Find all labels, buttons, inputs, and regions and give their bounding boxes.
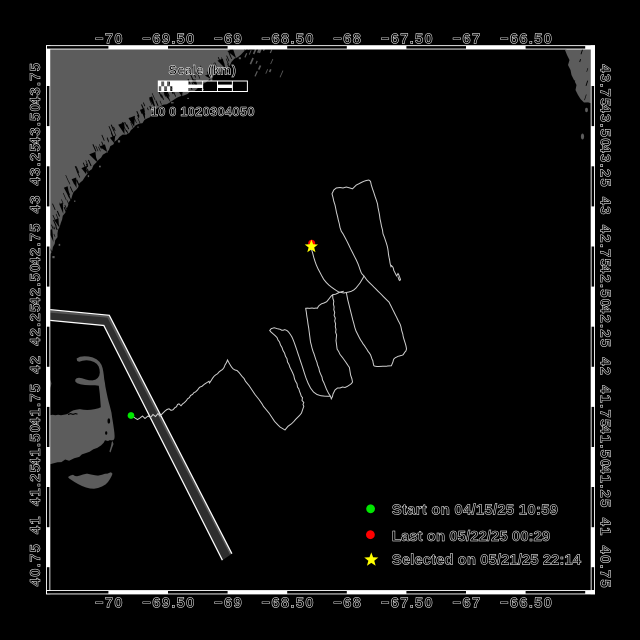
svg-text:41.75: 41.75	[597, 385, 614, 428]
svg-text:41: 41	[27, 515, 44, 534]
svg-text:40.75: 40.75	[27, 543, 44, 586]
svg-text:43: 43	[597, 197, 614, 216]
svg-text:Selected on 05/21/25 22:14: Selected on 05/21/25 22:14	[392, 552, 582, 569]
svg-text:42.50: 42.50	[597, 265, 614, 308]
svg-text:40.75: 40.75	[597, 545, 614, 588]
svg-text:43.25: 43.25	[597, 145, 614, 188]
svg-text:Start on 04/15/25 10:59: Start on 04/15/25 10:59	[392, 502, 558, 519]
svg-text:20: 20	[195, 104, 210, 119]
svg-text:41: 41	[597, 518, 614, 537]
svg-text:42.75: 42.75	[27, 222, 44, 265]
svg-text:43.75: 43.75	[597, 64, 614, 107]
svg-text:−67.50: −67.50	[381, 595, 434, 612]
svg-text:−67: −67	[452, 595, 481, 612]
svg-text:43.50: 43.50	[27, 102, 44, 145]
svg-text:43.75: 43.75	[27, 62, 44, 105]
svg-text:−66.50: −66.50	[500, 31, 553, 48]
svg-text:43.50: 43.50	[597, 104, 614, 147]
svg-text:42.25: 42.25	[27, 303, 44, 346]
svg-text:42: 42	[597, 357, 614, 376]
svg-text:−69.50: −69.50	[142, 31, 195, 48]
svg-text:−68: −68	[333, 595, 362, 612]
svg-text:40: 40	[225, 104, 240, 119]
svg-text:−67.50: −67.50	[381, 31, 434, 48]
svg-text:Scale (km): Scale (km)	[168, 64, 236, 78]
svg-text:−68: −68	[333, 31, 362, 48]
svg-text:10: 10	[151, 104, 166, 119]
svg-text:−69: −69	[214, 595, 243, 612]
svg-text:42: 42	[27, 355, 44, 374]
svg-text:30: 30	[210, 104, 225, 119]
svg-text:−70: −70	[95, 31, 124, 48]
svg-text:42.50: 42.50	[27, 262, 44, 305]
svg-text:41.75: 41.75	[27, 383, 44, 426]
svg-text:0: 0	[169, 104, 177, 119]
svg-text:−70: −70	[95, 595, 124, 612]
svg-text:41.50: 41.50	[27, 423, 44, 466]
svg-text:42.75: 42.75	[597, 225, 614, 268]
svg-text:42.25: 42.25	[597, 305, 614, 348]
svg-text:41.25: 41.25	[27, 463, 44, 506]
svg-text:−68.50: −68.50	[261, 31, 314, 48]
svg-text:10: 10	[180, 104, 195, 119]
svg-text:Last on 05/22/25 00:29: Last on 05/22/25 00:29	[392, 528, 550, 545]
svg-text:43.25: 43.25	[27, 142, 44, 185]
svg-text:−68.50: −68.50	[261, 595, 314, 612]
svg-text:−66.50: −66.50	[500, 595, 553, 612]
svg-text:43: 43	[27, 194, 44, 213]
svg-text:−69: −69	[214, 31, 243, 48]
svg-text:−69.50: −69.50	[142, 595, 195, 612]
svg-text:50: 50	[240, 104, 255, 119]
svg-text:41.25: 41.25	[597, 465, 614, 508]
svg-text:−67: −67	[452, 31, 481, 48]
svg-text:41.50: 41.50	[597, 425, 614, 468]
